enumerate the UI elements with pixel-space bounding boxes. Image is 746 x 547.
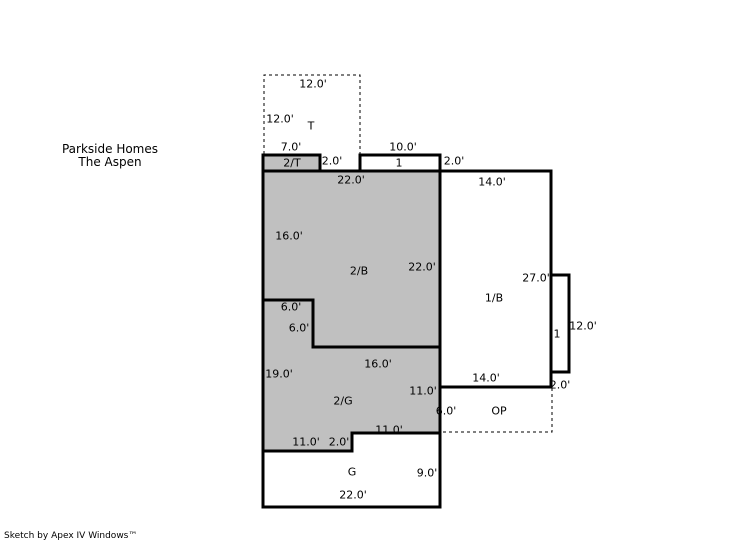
area-label-2g: 2/G	[333, 396, 352, 407]
area-label-stoop: 1	[396, 158, 403, 169]
dim-2b-right: 22.0'	[408, 262, 436, 273]
model-name: The Aspen	[35, 156, 185, 169]
dim-1b-top: 14.0'	[478, 177, 506, 188]
dim-terrace2t-width: 7.0'	[281, 142, 302, 153]
dim-2g-bottom-left: 11.0'	[292, 437, 320, 448]
dim-2g-right: 11.0'	[409, 386, 437, 397]
sketch-credit: Sketch by Apex IV Windows™	[4, 531, 137, 542]
dim-2b-top: 22.0'	[337, 175, 365, 186]
floorplan-drawing	[0, 0, 746, 547]
dim-1b-bottom-right: 2.0'	[550, 380, 571, 391]
floorplan-sketch-page: Parkside Homes The Aspen 12.0' 12.0' T 7…	[0, 0, 746, 547]
area-label-terrace: T	[308, 121, 315, 132]
dim-stoop-depth: 2.0'	[444, 156, 465, 167]
dim-terrace-width: 12.0'	[299, 79, 327, 90]
area-label-terrace2t: 2/T	[283, 158, 300, 169]
dim-2g-bottom-right: 11.0'	[375, 425, 403, 436]
area-label-garage: G	[348, 467, 357, 478]
dim-2g-step: 2.0'	[329, 437, 350, 448]
dim-2g-left: 19.0'	[265, 369, 293, 380]
bay-shape	[551, 275, 569, 372]
area-label-2b: 2/B	[350, 266, 368, 277]
dim-porch-left: 6.0'	[436, 406, 457, 417]
title-block: Parkside Homes The Aspen	[35, 143, 185, 169]
area-label-bay: 1	[554, 329, 561, 340]
dim-1b-right: 27.0'	[522, 273, 550, 284]
dim-2b-notch-height: 6.0'	[289, 323, 310, 334]
dim-garage-right: 9.0'	[417, 468, 438, 479]
dim-2b-left: 16.0'	[275, 231, 303, 242]
dim-garage-bottom: 22.0'	[339, 490, 367, 501]
area-label-1b: 1/B	[485, 293, 503, 304]
dim-1b-bottom: 14.0'	[472, 373, 500, 384]
dim-terrace-depth: 12.0'	[266, 114, 294, 125]
area-label-porch: OP	[491, 406, 506, 417]
dim-stoop-width: 10.0'	[389, 142, 417, 153]
dim-2b-notch-width: 6.0'	[281, 302, 302, 313]
dim-2g-top: 16.0'	[364, 359, 392, 370]
dim-terrace2t-depth: 2.0'	[322, 156, 343, 167]
dim-bay-height: 12.0'	[569, 321, 597, 332]
